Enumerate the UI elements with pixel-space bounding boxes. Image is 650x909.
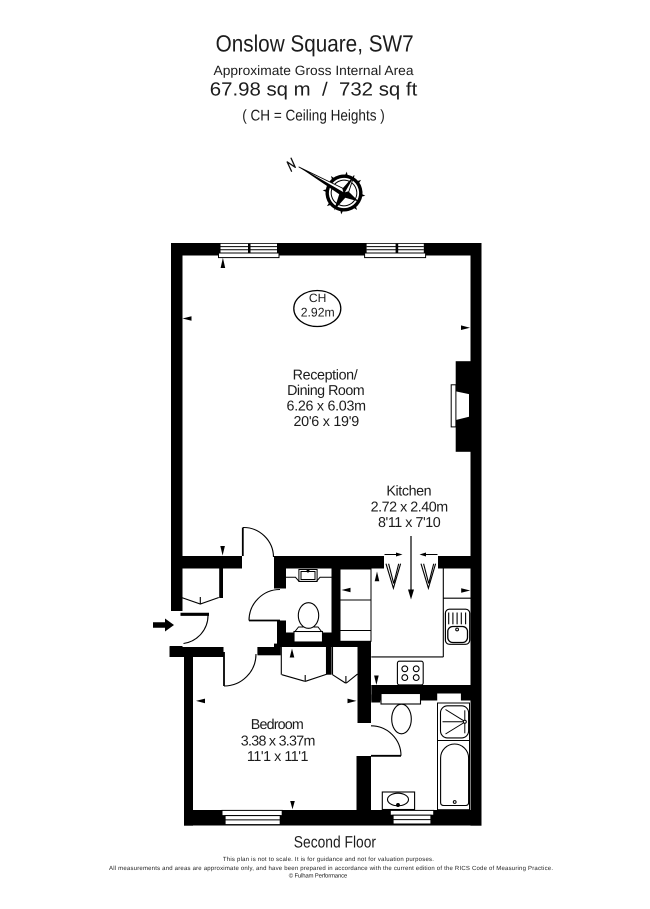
svg-text:Kitchen: Kitchen — [386, 484, 431, 500]
svg-text:All measurements and areas are: All measurements and areas are approxima… — [109, 865, 553, 872]
svg-text:11'1 x 11'1: 11'1 x 11'1 — [247, 749, 309, 765]
svg-text:Second Floor: Second Floor — [294, 834, 377, 852]
svg-text:Reception/: Reception/ — [293, 367, 358, 383]
svg-text:Dining Room: Dining Room — [287, 383, 365, 399]
svg-text:( CH = Ceiling Heights ): ( CH = Ceiling Heights ) — [242, 108, 385, 125]
svg-text:Onslow Square, SW7: Onslow Square, SW7 — [216, 31, 414, 57]
svg-text:3.38 x 3.37m: 3.38 x 3.37m — [241, 733, 316, 749]
svg-text:67.98 sq m / 732 sq ft: 67.98 sq m / 732 sq ft — [210, 80, 418, 101]
svg-text:Approximate Gross Internal Are: Approximate Gross Internal Area — [214, 63, 415, 78]
svg-text:CH: CH — [309, 291, 327, 305]
svg-text:Bedroom: Bedroom — [251, 717, 304, 733]
svg-text:20'6 x 19'9: 20'6 x 19'9 — [293, 414, 359, 430]
svg-text:2.72 x 2.40m: 2.72 x 2.40m — [371, 499, 449, 515]
svg-text:This plan is not to scale. It: This plan is not to scale. It is for gui… — [223, 856, 434, 863]
svg-text:8'11 x 7'10: 8'11 x 7'10 — [378, 515, 441, 531]
svg-text:6.26 x 6.03m: 6.26 x 6.03m — [287, 398, 367, 414]
svg-text:2.92m: 2.92m — [301, 306, 335, 320]
svg-text:© Fulham Performance: © Fulham Performance — [289, 873, 348, 880]
